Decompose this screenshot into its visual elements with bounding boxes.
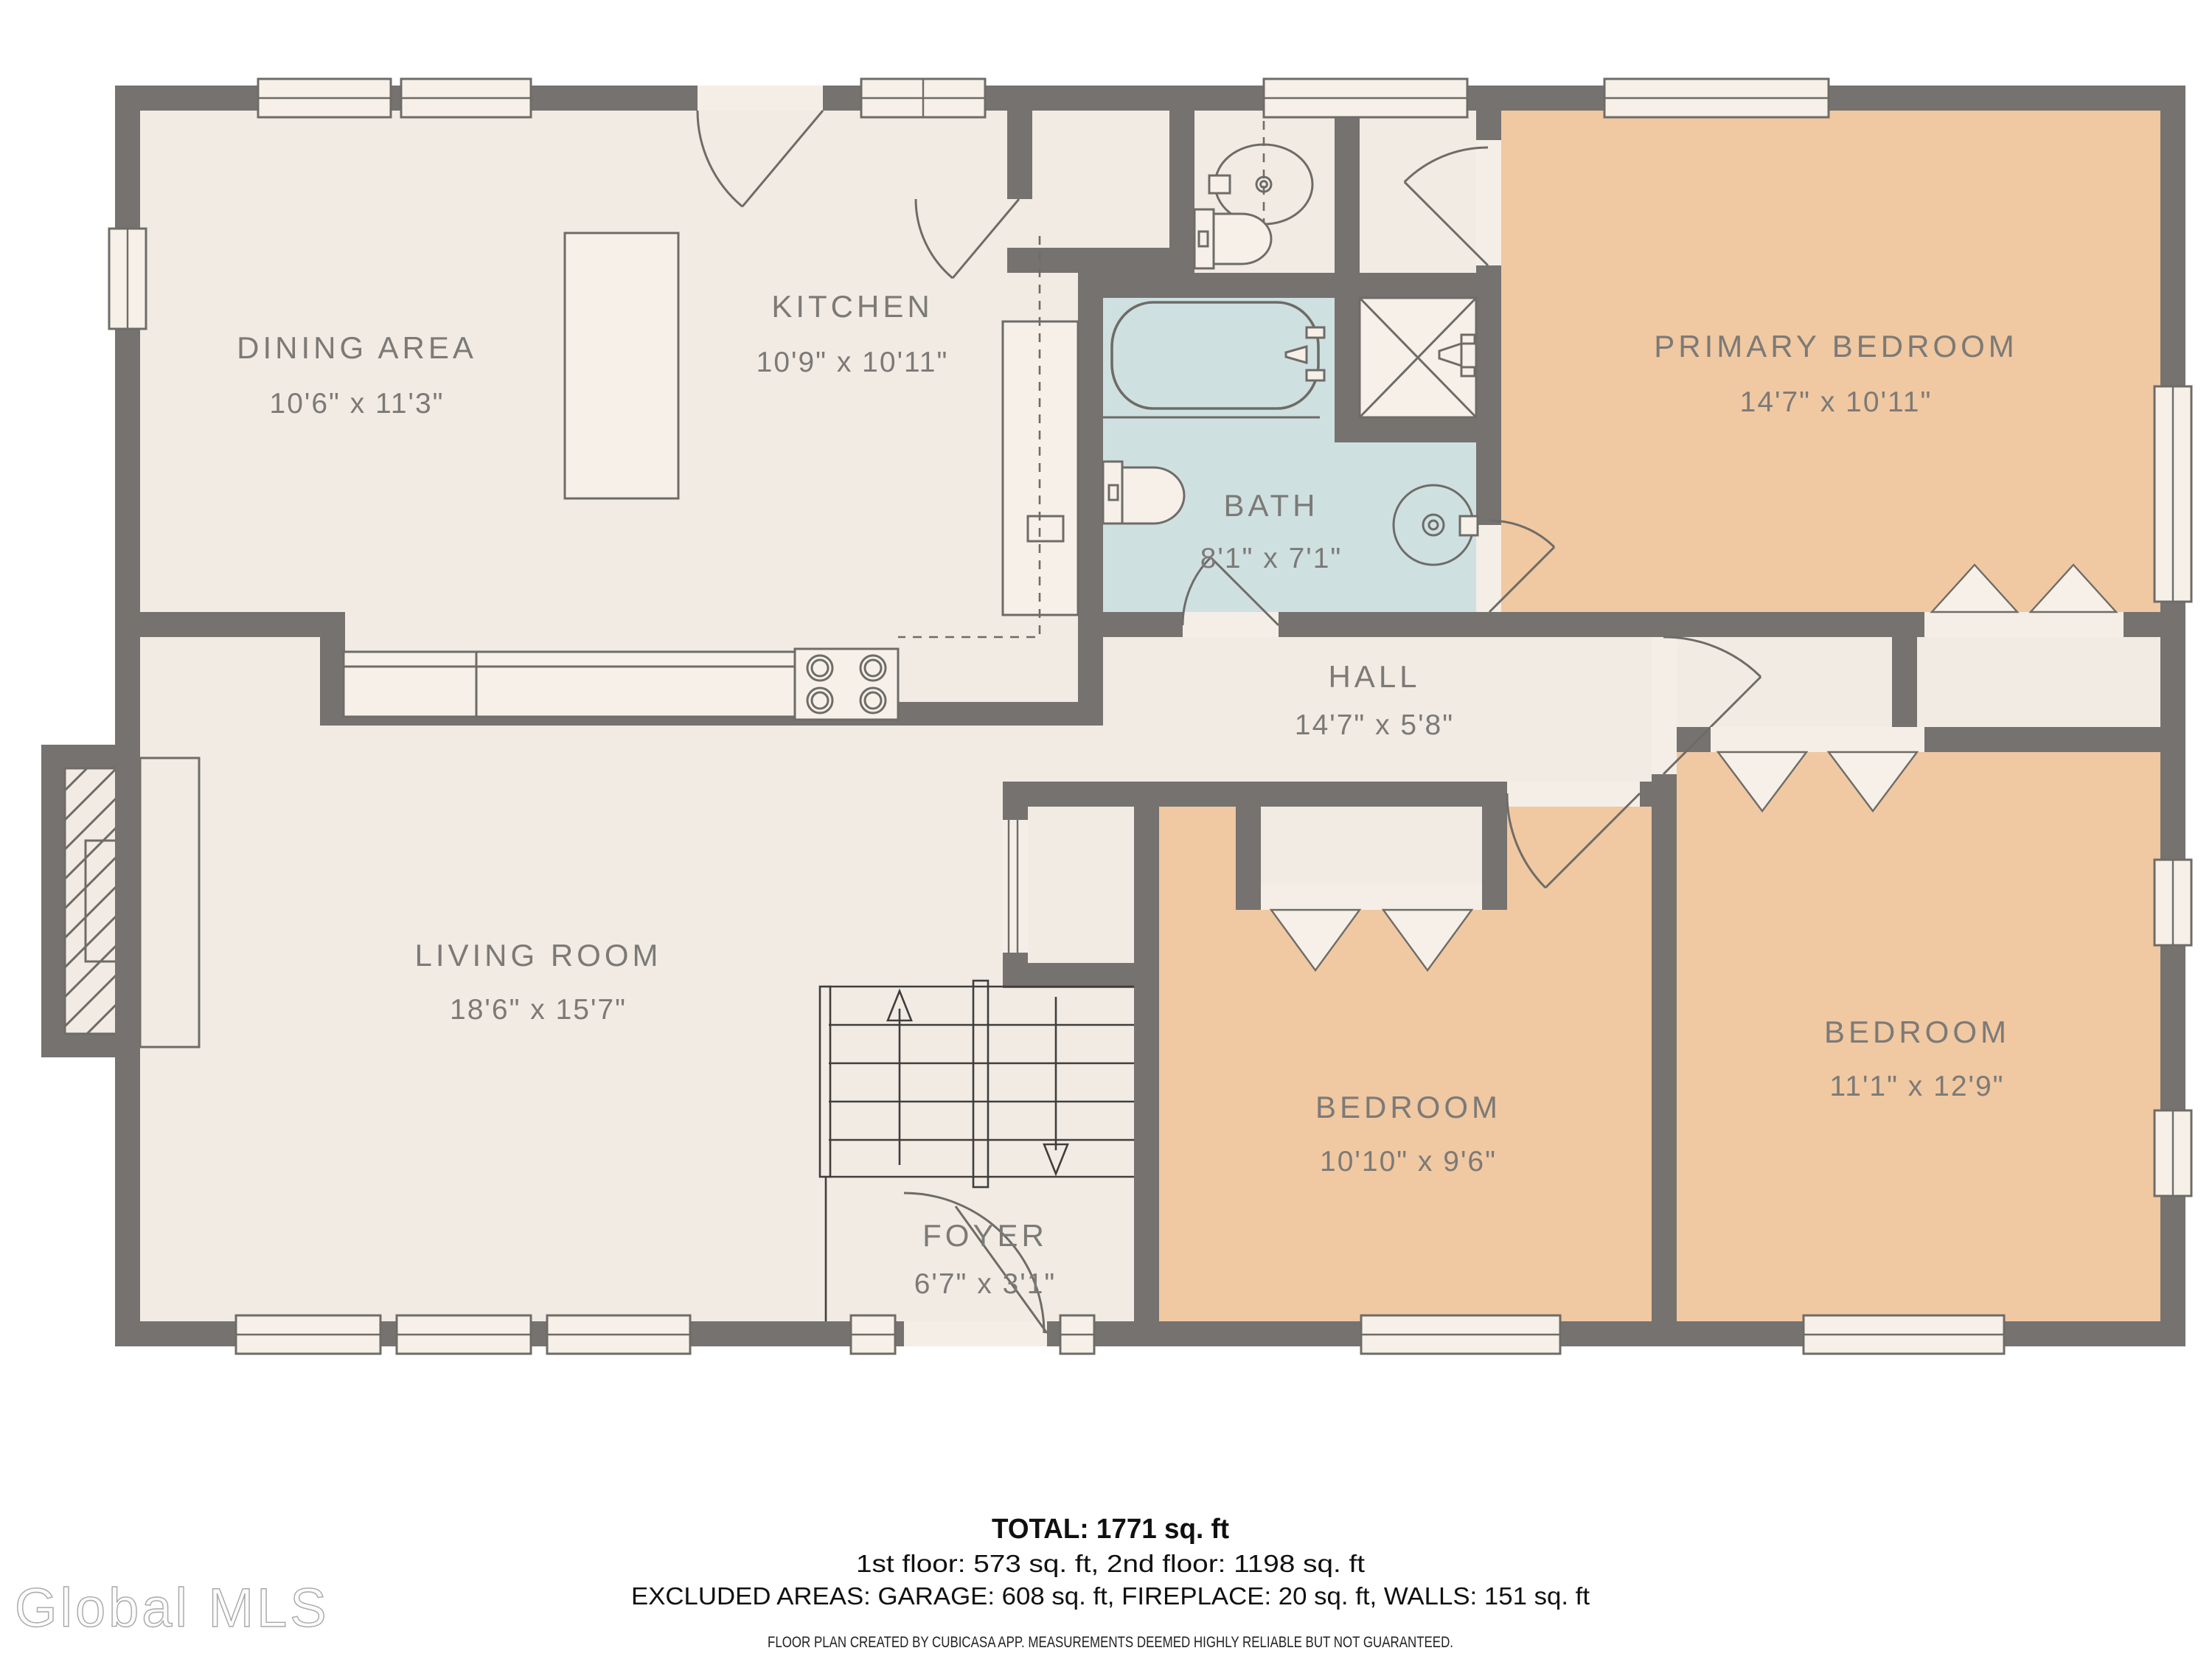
window bbox=[258, 79, 391, 117]
kitchen-island bbox=[565, 233, 678, 498]
svg-text:FOYER: FOYER bbox=[922, 1218, 1048, 1253]
svg-text:10'10" x 9'6": 10'10" x 9'6" bbox=[1320, 1146, 1497, 1178]
window bbox=[1060, 1315, 1094, 1354]
svg-text:BEDROOM: BEDROOM bbox=[1315, 1090, 1501, 1124]
svg-text:DINING AREA: DINING AREA bbox=[237, 330, 477, 365]
door-pocket bbox=[1003, 820, 1028, 953]
svg-text:PRIMARY BEDROOM: PRIMARY BEDROOM bbox=[1654, 329, 2018, 364]
summary-floors: 1st floor: 573 sq. ft, 2nd floor: 1198 s… bbox=[856, 1550, 1365, 1577]
svg-text:6'7" x 3'1": 6'7" x 3'1" bbox=[914, 1268, 1057, 1300]
svg-text:11'1" x 12'9": 11'1" x 12'9" bbox=[1830, 1071, 2005, 1102]
shower-icon bbox=[1360, 298, 1476, 417]
svg-text:BATH: BATH bbox=[1224, 488, 1319, 523]
window bbox=[2154, 386, 2191, 602]
window bbox=[236, 1315, 380, 1354]
window bbox=[2154, 860, 2191, 945]
window bbox=[2154, 1110, 2191, 1196]
svg-text:LIVING ROOM: LIVING ROOM bbox=[414, 938, 661, 973]
summary-total: TOTAL: 1771 sq. ft bbox=[992, 1514, 1229, 1545]
window bbox=[1264, 79, 1467, 117]
svg-text:KITCHEN: KITCHEN bbox=[771, 289, 933, 324]
svg-text:18'6" x 15'7": 18'6" x 15'7" bbox=[450, 994, 627, 1026]
stove-icon bbox=[795, 649, 898, 720]
svg-text:HALL: HALL bbox=[1328, 659, 1420, 694]
svg-text:14'7" x 5'8": 14'7" x 5'8" bbox=[1295, 709, 1454, 741]
window bbox=[861, 79, 985, 117]
toilet-icon bbox=[1194, 209, 1271, 268]
window bbox=[397, 1315, 531, 1354]
kitchen-counter bbox=[344, 652, 795, 717]
floorplan-svg: DINING AREA 10'6" x 11'3" KITCHEN 10'9" … bbox=[0, 0, 2212, 1659]
window bbox=[851, 1315, 895, 1354]
svg-text:10'9" x 10'11": 10'9" x 10'11" bbox=[757, 347, 949, 378]
svg-text:BEDROOM: BEDROOM bbox=[1824, 1015, 2010, 1049]
svg-text:14'7" x 10'11": 14'7" x 10'11" bbox=[1740, 386, 1933, 418]
window bbox=[1804, 1315, 2004, 1354]
bathtub-icon bbox=[1103, 302, 1324, 417]
summary-block: TOTAL: 1771 sq. ft 1st floor: 573 sq. ft… bbox=[631, 1514, 1590, 1651]
summary-excluded: EXCLUDED AREAS: GARAGE: 608 sq. ft, FIRE… bbox=[631, 1582, 1590, 1610]
floor-plan-page: DINING AREA 10'6" x 11'3" KITCHEN 10'9" … bbox=[0, 0, 2212, 1659]
window bbox=[109, 229, 146, 329]
summary-disclaimer: FLOOR PLAN CREATED BY CUBICASA APP. MEAS… bbox=[768, 1634, 1453, 1651]
svg-text:10'6" x 11'3": 10'6" x 11'3" bbox=[270, 388, 445, 420]
window bbox=[1604, 79, 1829, 117]
svg-text:8'1" x 7'1": 8'1" x 7'1" bbox=[1200, 543, 1343, 574]
window bbox=[547, 1315, 690, 1354]
global-mls-watermark: Global MLS bbox=[15, 1577, 330, 1638]
window bbox=[1361, 1315, 1560, 1354]
window bbox=[401, 79, 531, 117]
